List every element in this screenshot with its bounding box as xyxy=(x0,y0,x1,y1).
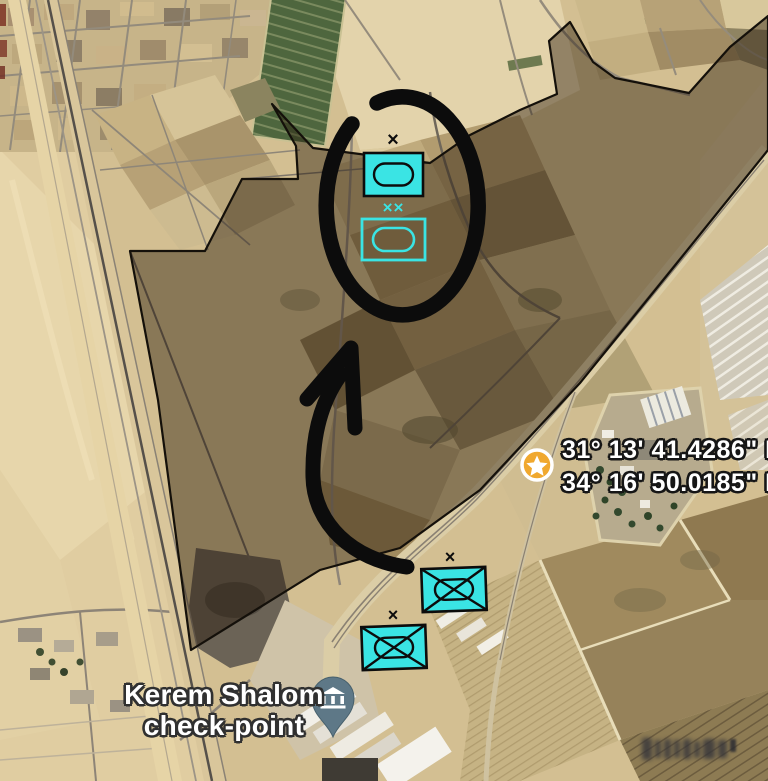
satellite-map-graphic xyxy=(0,0,768,781)
echelon-mark-mech-east: × xyxy=(430,548,470,566)
unit-armor-filled xyxy=(364,153,423,196)
checkpoint-label: Kerem Shalom check-point xyxy=(86,679,362,741)
checkpoint-label-line2: check-point xyxy=(86,710,362,741)
blurred-watermark xyxy=(642,732,766,766)
annotated-satellite-map: × ×× × × 31° 13' 41.4286" N 34° 16' 50.0… xyxy=(0,0,768,781)
echelon-mark-armor: × xyxy=(363,130,423,150)
unit-mech-infantry-west xyxy=(361,625,426,670)
coordinates-longitude: 34° 16' 50.0185" E xyxy=(562,467,768,500)
echelon-mark-mech-west: × xyxy=(373,606,413,624)
star-marker xyxy=(522,450,552,480)
unit-mech-infantry-east xyxy=(421,567,486,612)
coordinates-label: 31° 13' 41.4286" N 34° 16' 50.0185" E xyxy=(562,434,768,500)
checkpoint-label-line1: Kerem Shalom xyxy=(86,679,362,710)
echelon-mark-division: ×× xyxy=(362,199,425,216)
coordinates-latitude: 31° 13' 41.4286" N xyxy=(562,434,768,467)
